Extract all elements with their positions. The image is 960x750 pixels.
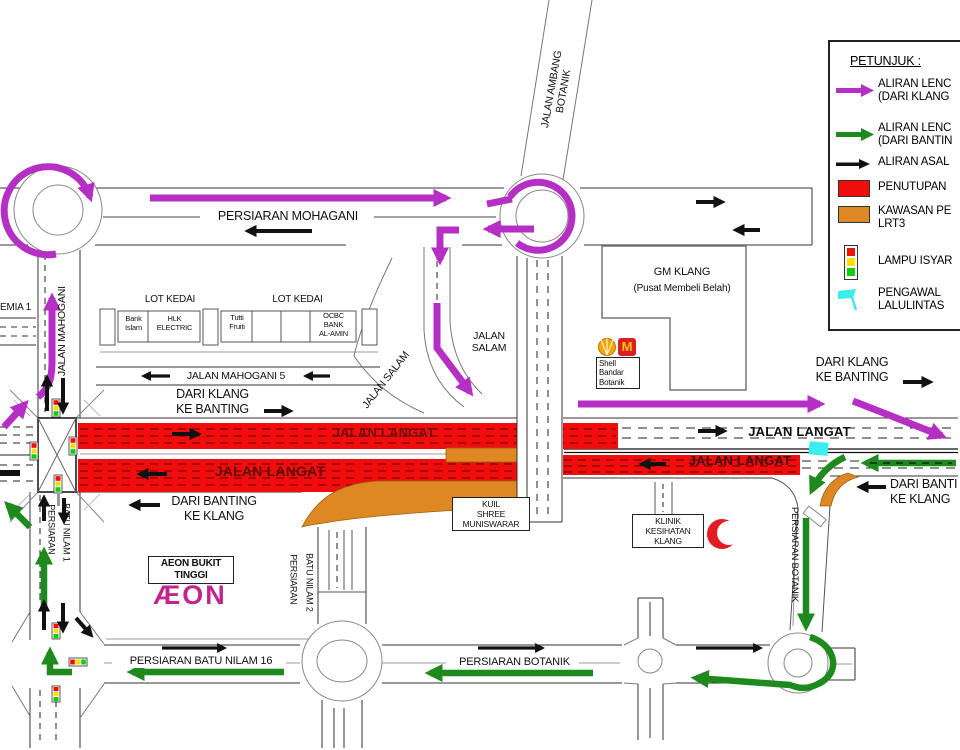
- road-label-batu-nilam-1: BATU NILAM 1: [61, 490, 72, 574]
- road-label-batu-nilam-1-persiaran: PERSIARAN: [46, 487, 57, 571]
- direction-from-klang-east: DARI KLANG KE BANTING: [798, 355, 906, 385]
- direction-from-banting-west: DARI BANTING KE KLANG: [158, 494, 270, 524]
- road-label-persiaran-botanik-vertical: PERSIARAN BOTANIK: [789, 497, 800, 612]
- road-label-jalan-mahogani: JALAN MAHOGANI: [56, 266, 68, 396]
- traffic-light-icon: [844, 245, 858, 280]
- shell-icon: [599, 339, 616, 356]
- traffic-marshal-cyan: [809, 441, 829, 456]
- legend-item-kawasan-lrt3: KAWASAN PE LRT3: [878, 205, 951, 231]
- road-label-jalan-langat-upper-left: JALAN LANGAT: [320, 425, 448, 440]
- legend-item-penutupan: PENUTUPAN: [878, 181, 946, 194]
- shell-bandar-botanik-label: Shell Bandar Botanik: [596, 357, 640, 389]
- klinik-kesihatan-klang-label: KLINIK KESIHATAN KLANG: [632, 514, 704, 548]
- lot-kedai-left-label: LOT KEDAI: [130, 294, 210, 306]
- gm-klang-label: GM KLANG: [617, 266, 747, 279]
- mcdonalds-icon: M: [618, 338, 636, 356]
- legend-item-aliran-lencongan-klang: ALIRAN LENC (DARI KLANG: [878, 78, 951, 104]
- lot-kedai-right-label: LOT KEDAI: [255, 294, 340, 306]
- road-label-batu-nilam-2-persiaran: PERSIARAN: [288, 537, 299, 621]
- road-label-jalan-mahogani-5: JALAN MAHOGANI 5: [180, 370, 292, 382]
- magenta-arrow-icon: [836, 84, 874, 97]
- road-label-jalan-langat-upper-right: JALAN LANGAT: [735, 424, 864, 439]
- road-label-batu-nilam-2: BATU NILAM 2: [304, 540, 315, 624]
- road-label-batu-nilam-16: PERSIARAN BATU NILAM 16: [116, 655, 286, 668]
- legend-item-aliran-asal: ALIRAN ASAL: [878, 156, 949, 169]
- cyan-flag-icon: [836, 289, 862, 311]
- road-label-jalan-langat-lower-left: JALAN LANGAT: [200, 463, 340, 480]
- jalan-ambang-botanik-south-stub: [517, 256, 563, 522]
- legend-item-aliran-lencongan-banting: ALIRAN LENC (DARI BANTIN: [878, 122, 952, 148]
- road-label-jalan-salam: JALAN SALAM: [460, 330, 518, 355]
- road-label-jalan-langat-lower-right: JALAN LANGAT: [676, 453, 804, 468]
- direction-from-klang-west: DARI KLANG KE BANTING: [160, 387, 265, 417]
- shop-ocbc: OCBC BANK AL-AMIN: [311, 312, 356, 339]
- legend-item-pengawal-lalulintas: PENGAWAL LALULINTAS: [878, 287, 944, 313]
- shop-bank-islam: Bank Islam: [119, 315, 148, 333]
- lrt3-orange-swatch: [838, 206, 870, 223]
- emia-1-label: EMIA 1: [0, 302, 38, 314]
- legend-item-lampu-isyarat: LAMPU ISYAR: [878, 255, 952, 268]
- black-arrow-icon: [836, 159, 870, 169]
- aeon-logo: ÆON: [146, 580, 234, 612]
- closure-red-swatch: [838, 180, 870, 197]
- green-arrow-icon: [836, 128, 874, 141]
- shop-hlk-electric: HLK ELECTRIC: [149, 315, 200, 333]
- shop-tutti-fruiti: Tutti Fruiti: [222, 314, 252, 332]
- kuil-shree-muniswarar-label: KUIL SHREE MUNISWARAR: [452, 497, 530, 531]
- red-crescent-icon: [707, 519, 741, 549]
- direction-from-banting-east: DARI BANTI KE KLANG: [890, 477, 960, 507]
- road-label-persiaran-botanik: PERSIARAN BOTANIK: [450, 656, 579, 669]
- road-label-persiaran-mohagani: PERSIARAN MOHAGANI: [202, 209, 374, 224]
- traffic-diversion-map: PERSIARAN MOHAGANI JALAN AMBANG BOTANIK …: [0, 0, 960, 750]
- legend-title: PETUNJUK :: [850, 54, 921, 68]
- legend: PETUNJUK : ALIRAN LENC (DARI KLANG ALIRA…: [828, 40, 960, 331]
- gm-klang-sublabel: (Pusat Membeli Belah): [607, 283, 757, 295]
